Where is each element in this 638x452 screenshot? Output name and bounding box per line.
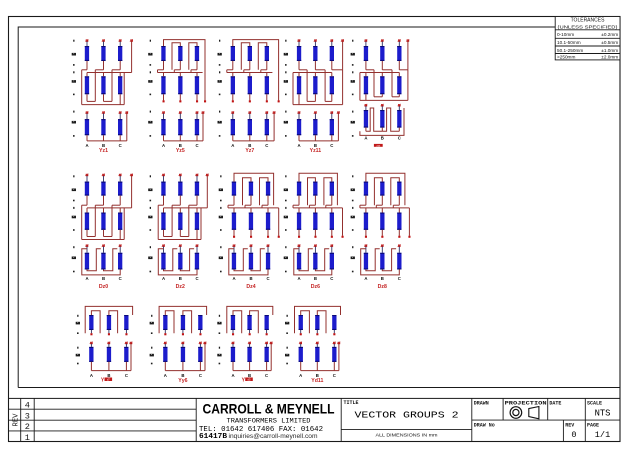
svg-text:B: B [314, 276, 317, 281]
svg-text:50.1-250mm: 50.1-250mm [557, 48, 583, 53]
svg-text:C: C [199, 373, 202, 378]
svg-text:A: A [231, 143, 234, 148]
svg-text:(UNLESS SPECIFIED): (UNLESS SPECIFIED) [558, 24, 619, 29]
svg-text:A: A [299, 373, 302, 378]
svg-text:B: B [381, 136, 384, 141]
svg-text:Dz8: Dz8 [378, 284, 387, 290]
svg-text:DRAWN: DRAWN [474, 400, 489, 406]
svg-text:PROJECTION: PROJECTION [505, 400, 547, 406]
svg-text:PAGE: PAGE [587, 422, 599, 428]
svg-text:B: B [107, 373, 110, 378]
svg-text:±0.2mm: ±0.2mm [601, 32, 618, 37]
svg-text:C: C [265, 373, 268, 378]
svg-text:±1.0mm: ±1.0mm [601, 48, 618, 53]
svg-text:NTS: NTS [595, 408, 611, 418]
svg-text:VECTOR GROUPS 2: VECTOR GROUPS 2 [355, 410, 459, 421]
svg-text:Yz11: Yz11 [310, 148, 322, 154]
svg-text:Dz4: Dz4 [246, 284, 255, 290]
svg-text:2: 2 [25, 422, 30, 432]
svg-text:A: A [297, 276, 300, 281]
svg-text:>250mm: >250mm [557, 54, 575, 59]
svg-text:±0.5mm: ±0.5mm [601, 40, 618, 45]
svg-text:inquiries@carroll-meynell.com: inquiries@carroll-meynell.com [229, 434, 318, 440]
svg-text:Yz7: Yz7 [245, 148, 254, 154]
svg-text:0-10mm: 0-10mm [557, 32, 574, 37]
svg-text:C: C [119, 143, 122, 148]
svg-text:C: C [330, 276, 333, 281]
svg-text:±2.0mm: ±2.0mm [601, 54, 618, 59]
svg-text:REV: REV [565, 422, 574, 428]
svg-text:TITLE: TITLE [344, 400, 359, 406]
svg-text:Yz1: Yz1 [99, 148, 108, 154]
svg-text:3: 3 [25, 412, 30, 422]
svg-text:B: B [249, 276, 252, 281]
svg-text:TOLERANCES: TOLERANCES [571, 18, 605, 24]
svg-text:A: A [231, 373, 234, 378]
svg-text:C: C [330, 143, 333, 148]
svg-text:Yz5: Yz5 [176, 148, 185, 154]
svg-text:C: C [195, 276, 198, 281]
svg-text:10.1-50mm: 10.1-50mm [557, 40, 581, 45]
svg-text:C: C [125, 373, 128, 378]
svg-text:A: A [364, 276, 367, 281]
svg-text:Dz2: Dz2 [176, 284, 185, 290]
svg-text:A: A [90, 373, 93, 378]
svg-text:B: B [102, 276, 105, 281]
svg-text:SCALE: SCALE [587, 400, 602, 406]
svg-text:REV: REV [12, 413, 20, 427]
svg-text:B: B [248, 373, 251, 378]
svg-text:A: A [162, 276, 165, 281]
svg-text:A: A [297, 143, 300, 148]
svg-text:ALL DIMENSIONS IN mm: ALL DIMENSIONS IN mm [376, 433, 438, 438]
svg-text:C: C [265, 143, 268, 148]
svg-text:C: C [398, 136, 401, 141]
svg-text:Yy6: Yy6 [178, 378, 187, 384]
svg-text:CARROLL & MEYNELL: CARROLL & MEYNELL [203, 402, 335, 417]
svg-text:DRAW No: DRAW No [474, 422, 495, 428]
svg-text:C: C [119, 276, 122, 281]
svg-text:1: 1 [25, 433, 30, 443]
svg-text:0: 0 [571, 430, 576, 440]
svg-text:4: 4 [25, 401, 30, 411]
svg-text:C: C [333, 373, 336, 378]
svg-text:B: B [381, 276, 384, 281]
svg-text:DATE: DATE [549, 400, 561, 406]
svg-text:C: C [398, 276, 401, 281]
svg-text:A: A [164, 373, 167, 378]
svg-text:C: C [266, 276, 269, 281]
svg-text:A: A [364, 136, 367, 141]
svg-text:Dz0: Dz0 [99, 284, 108, 290]
svg-text:A: A [85, 276, 88, 281]
svg-text:Yd11: Yd11 [311, 378, 323, 384]
svg-text:A: A [232, 276, 235, 281]
svg-text:Dz6: Dz6 [311, 284, 320, 290]
svg-text:61417B: 61417B [199, 433, 228, 441]
svg-text:B: B [179, 276, 182, 281]
svg-text:TRANSFORMERS LIMITED: TRANSFORMERS LIMITED [227, 418, 311, 425]
svg-text:1/1: 1/1 [595, 430, 610, 440]
svg-text:A: A [85, 143, 88, 148]
svg-text:A: A [162, 143, 165, 148]
svg-text:C: C [195, 143, 198, 148]
